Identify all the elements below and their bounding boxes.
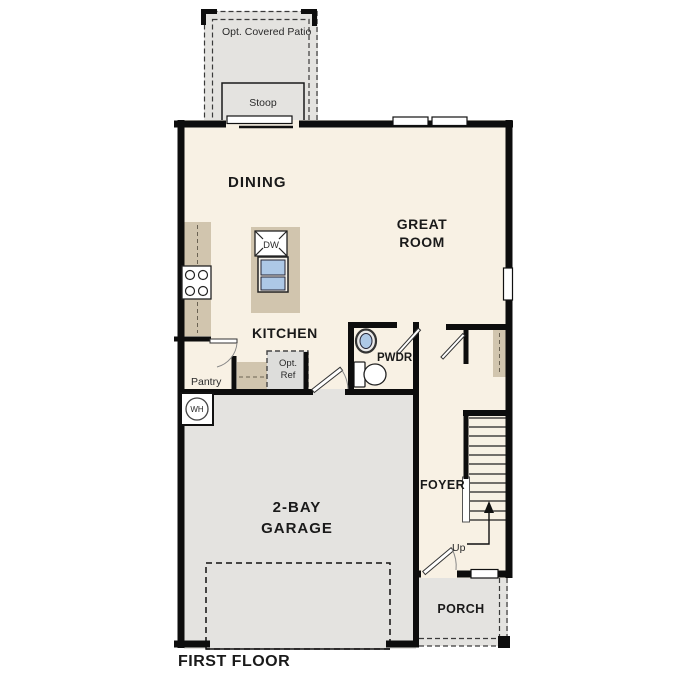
toilet xyxy=(354,362,386,387)
window-right-wall xyxy=(504,268,513,300)
great-room-label-line1: GREAT xyxy=(397,216,447,232)
porch-column xyxy=(498,636,510,648)
garage-label-line1: 2-BAY xyxy=(273,499,322,516)
great-room-label-line2: ROOM xyxy=(399,234,445,250)
plan-title: FIRST FLOOR xyxy=(178,653,290,670)
stoop-label: Stoop xyxy=(249,97,277,109)
floor-plan-page: Opt. Covered Patio Stoop DINING GREAT RO… xyxy=(0,0,687,687)
pantry-label: Pantry xyxy=(191,376,222,388)
powder-sink xyxy=(356,330,376,353)
porch-label: PORCH xyxy=(437,602,484,616)
window-great-room-2 xyxy=(432,117,467,126)
opt-ref-label-line2: Ref xyxy=(281,370,296,381)
window-great-room-1 xyxy=(393,117,428,126)
opt-ref-label-line1: Opt. xyxy=(279,358,297,369)
window-front xyxy=(471,570,498,579)
patio-label: Opt. Covered Patio xyxy=(222,26,311,38)
kitchen-sink xyxy=(258,257,288,292)
sliding-door xyxy=(226,116,299,128)
garage-floor xyxy=(184,389,416,649)
dishwasher-label: DW xyxy=(263,240,279,251)
kitchen-label: KITCHEN xyxy=(252,325,318,341)
cooktop xyxy=(182,266,211,299)
foyer-label: FOYER xyxy=(420,478,465,492)
garage-label-line2: GARAGE xyxy=(261,520,333,537)
water-heater-label: WH xyxy=(190,405,204,414)
up-label: Up xyxy=(452,542,466,554)
powder-label: PWDR xyxy=(377,352,413,364)
floor-plan-drawing: Opt. Covered Patio Stoop DINING GREAT RO… xyxy=(0,0,687,687)
dining-label: DINING xyxy=(228,174,287,191)
